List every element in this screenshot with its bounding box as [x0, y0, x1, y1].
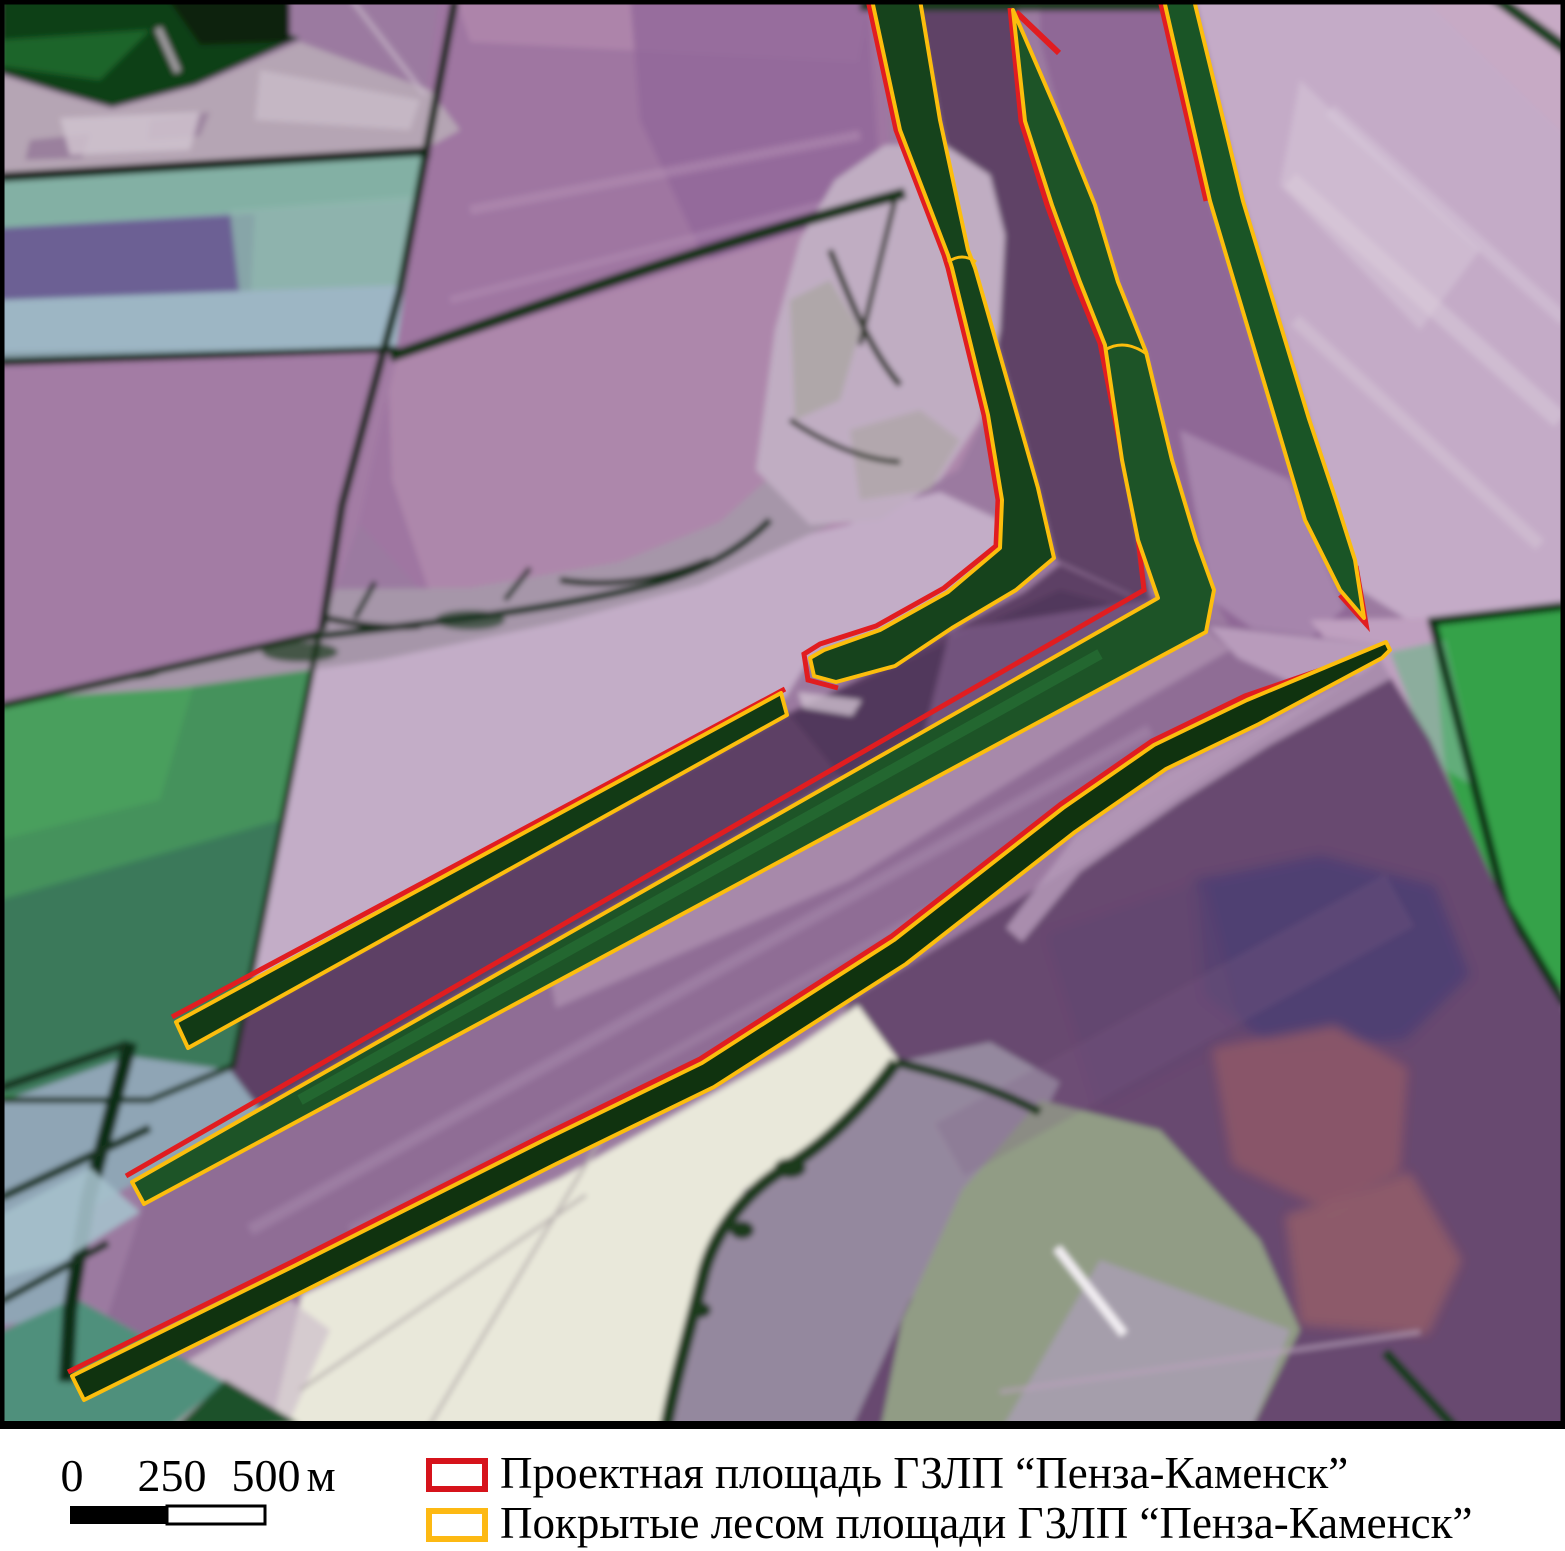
svg-text:м: м [306, 1450, 335, 1501]
svg-text:250: 250 [138, 1450, 207, 1501]
svg-text:0: 0 [61, 1450, 84, 1501]
svg-text:Проектная площадь ГЗЛП “Пенза-: Проектная площадь ГЗЛП “Пенза-Каменск” [500, 1448, 1348, 1498]
svg-text:Покрытые лесом площади ГЗЛП “П: Покрытые лесом площади ГЗЛП “Пенза-Камен… [500, 1498, 1472, 1548]
svg-text:500: 500 [232, 1450, 301, 1501]
